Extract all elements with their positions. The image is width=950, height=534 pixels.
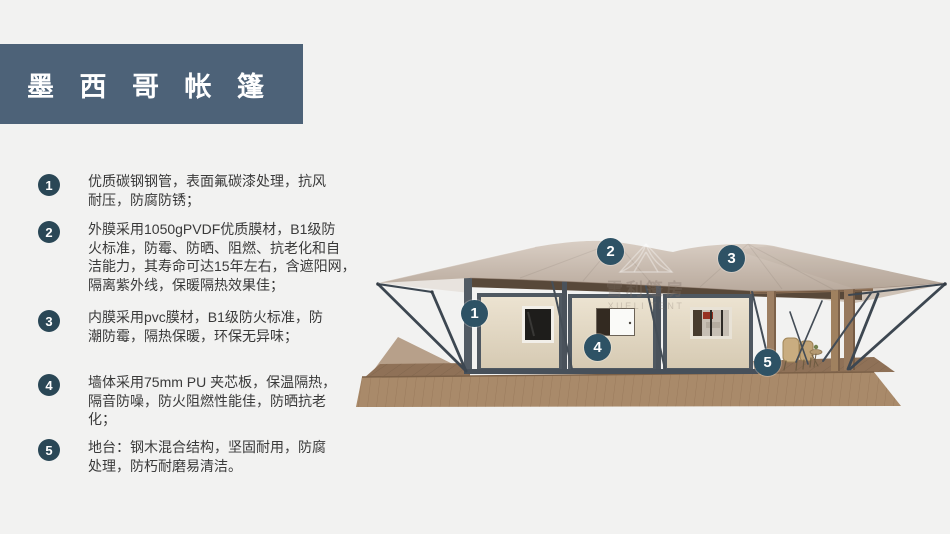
callout-badge-5: 5 [754,349,781,376]
joint-column [656,282,661,372]
wall-panel-3 [663,294,753,372]
window-1 [522,306,554,343]
callout-badge-1: 1 [461,300,488,327]
callout-badge-3: 3 [718,245,745,272]
door-window [596,308,635,336]
window-3 [690,307,732,339]
callout-badge-2: 2 [597,238,624,265]
slide: 墨 西 哥 帐 篷 1 优质碳钢钢管，表面氟碳漆处理，抗风 耐压，防腐防锈； 2… [0,0,950,534]
wall-panel-2 [568,294,657,372]
base-rail [464,369,758,374]
tent-illustration [0,0,950,534]
wall-panel-1 [477,293,563,372]
callout-badge-4: 4 [584,334,611,361]
